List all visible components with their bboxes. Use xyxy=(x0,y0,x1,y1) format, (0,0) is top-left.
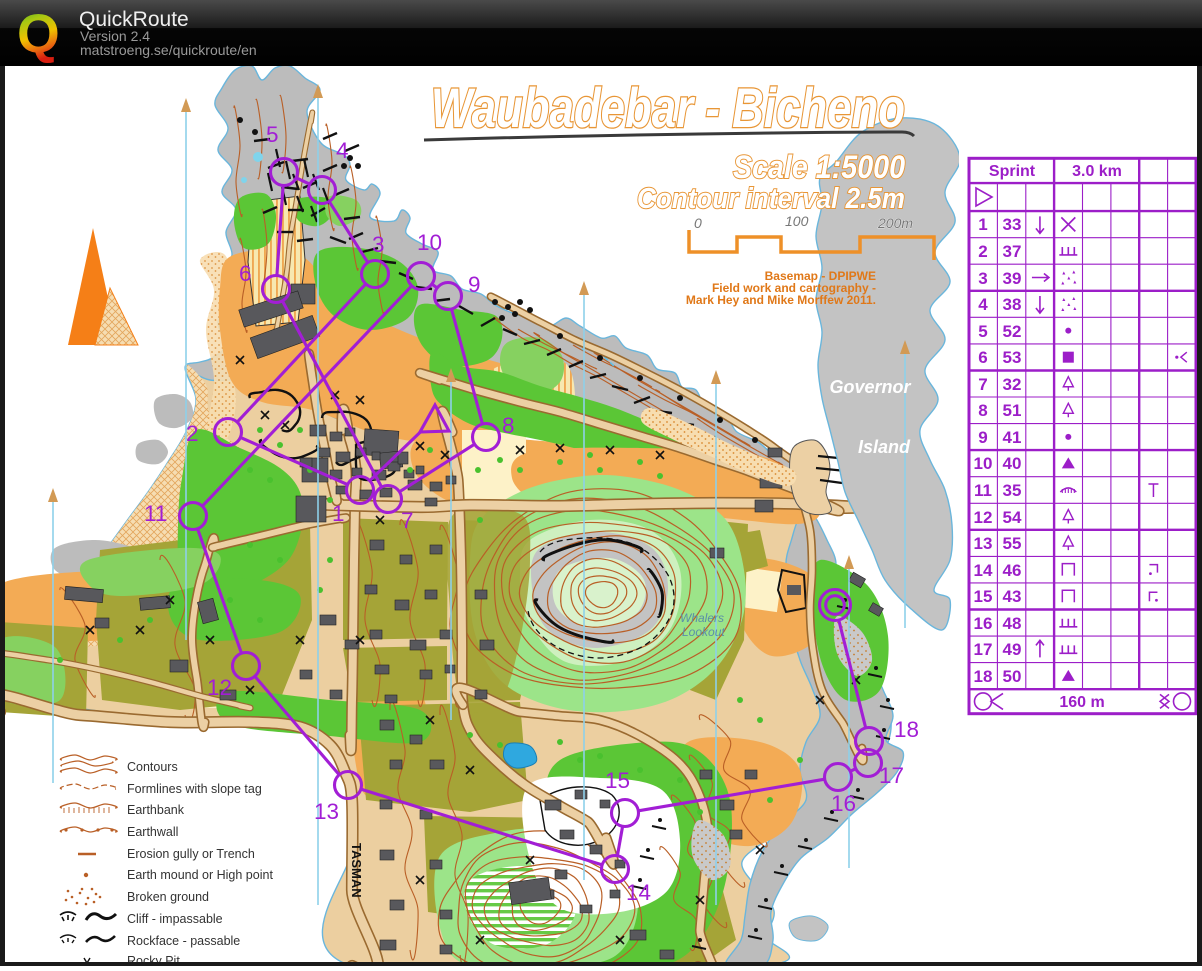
svg-text:15: 15 xyxy=(974,587,993,606)
svg-text:3: 3 xyxy=(978,269,987,288)
svg-text:100: 100 xyxy=(785,213,809,229)
svg-text:Broken ground: Broken ground xyxy=(127,890,209,904)
svg-text:33: 33 xyxy=(1003,215,1022,234)
svg-text:Erosion gully or Trench: Erosion gully or Trench xyxy=(127,847,255,861)
svg-text:matstroeng.se/quickroute/en: matstroeng.se/quickroute/en xyxy=(80,42,257,58)
svg-text:39: 39 xyxy=(1003,269,1022,288)
svg-text:3.0 km: 3.0 km xyxy=(1072,163,1122,180)
svg-text:37: 37 xyxy=(1003,242,1022,261)
svg-text:4: 4 xyxy=(978,295,988,314)
svg-text:10: 10 xyxy=(974,454,993,473)
svg-text:Contours: Contours xyxy=(127,760,178,774)
svg-text:8: 8 xyxy=(978,401,987,420)
svg-text:13: 13 xyxy=(314,799,339,824)
svg-text:2: 2 xyxy=(186,421,199,446)
svg-text:160 m: 160 m xyxy=(1059,694,1104,711)
svg-text:1: 1 xyxy=(332,501,345,526)
svg-text:15: 15 xyxy=(605,768,630,793)
svg-text:48: 48 xyxy=(1003,614,1022,633)
svg-text:Governor: Governor xyxy=(829,377,911,397)
svg-text:1: 1 xyxy=(978,215,987,234)
svg-text:7: 7 xyxy=(978,375,987,394)
svg-text:17: 17 xyxy=(879,763,904,788)
svg-text:Cliff - impassable: Cliff - impassable xyxy=(127,912,223,926)
svg-text:Q: Q xyxy=(17,2,60,64)
svg-text:Earthbank: Earthbank xyxy=(127,803,185,817)
svg-text:13: 13 xyxy=(974,534,993,553)
svg-text:14: 14 xyxy=(626,880,651,905)
svg-text:8: 8 xyxy=(502,413,515,438)
svg-text:11: 11 xyxy=(144,501,167,526)
svg-text:2: 2 xyxy=(978,242,987,261)
svg-text:51: 51 xyxy=(1003,401,1022,420)
svg-text:6: 6 xyxy=(978,348,987,367)
svg-text:5: 5 xyxy=(266,122,279,147)
svg-text:10: 10 xyxy=(417,230,442,255)
svg-text:Earthwall: Earthwall xyxy=(127,825,178,839)
svg-text:38: 38 xyxy=(1003,295,1022,314)
svg-text:50: 50 xyxy=(1003,667,1022,686)
svg-text:3: 3 xyxy=(372,232,385,257)
svg-text:200m: 200m xyxy=(877,215,913,231)
svg-text:16: 16 xyxy=(974,614,993,633)
svg-text:TASMAN: TASMAN xyxy=(349,843,364,898)
svg-text:54: 54 xyxy=(1003,508,1022,527)
svg-text:Sprint: Sprint xyxy=(989,163,1036,180)
svg-text:6: 6 xyxy=(239,261,252,286)
svg-text:46: 46 xyxy=(1003,561,1022,580)
svg-text:18: 18 xyxy=(894,717,919,742)
svg-text:Scale 1:5000: Scale 1:5000 xyxy=(733,149,905,185)
svg-text:7: 7 xyxy=(401,508,414,533)
svg-text:9: 9 xyxy=(978,428,987,447)
svg-text:5: 5 xyxy=(978,322,987,341)
svg-text:12: 12 xyxy=(207,675,232,700)
svg-text:11: 11 xyxy=(974,481,992,500)
svg-text:18: 18 xyxy=(974,667,993,686)
svg-text:49: 49 xyxy=(1003,640,1022,659)
svg-text:43: 43 xyxy=(1003,587,1022,606)
svg-text:52: 52 xyxy=(1003,322,1022,341)
svg-text:Rockface - passable: Rockface - passable xyxy=(127,934,240,948)
svg-text:Waubadebar - Bicheno: Waubadebar - Bicheno xyxy=(431,76,905,139)
svg-text:Lookout: Lookout xyxy=(682,625,725,639)
svg-text:17: 17 xyxy=(974,640,993,659)
svg-text:32: 32 xyxy=(1003,375,1022,394)
svg-text:35: 35 xyxy=(1003,481,1022,500)
svg-text:41: 41 xyxy=(1003,428,1022,447)
svg-text:Contour interval 2.5m: Contour interval 2.5m xyxy=(637,183,905,215)
svg-text:40: 40 xyxy=(1003,454,1022,473)
svg-text:14: 14 xyxy=(974,561,993,580)
svg-text:12: 12 xyxy=(974,508,993,527)
svg-text:53: 53 xyxy=(1003,348,1022,367)
svg-text:Island: Island xyxy=(858,437,911,457)
svg-text:Whalers: Whalers xyxy=(680,611,724,625)
svg-text:9: 9 xyxy=(468,272,481,297)
svg-text:Mark Hey and Mike Morffew 2011: Mark Hey and Mike Morffew 2011. xyxy=(686,293,876,307)
svg-text:55: 55 xyxy=(1003,534,1022,553)
svg-text:0: 0 xyxy=(694,215,702,231)
svg-text:4: 4 xyxy=(336,138,349,163)
svg-text:Formlines with slope tag: Formlines with slope tag xyxy=(127,782,262,796)
svg-text:16: 16 xyxy=(831,791,856,816)
svg-text:Earth mound or High point: Earth mound or High point xyxy=(127,868,273,882)
